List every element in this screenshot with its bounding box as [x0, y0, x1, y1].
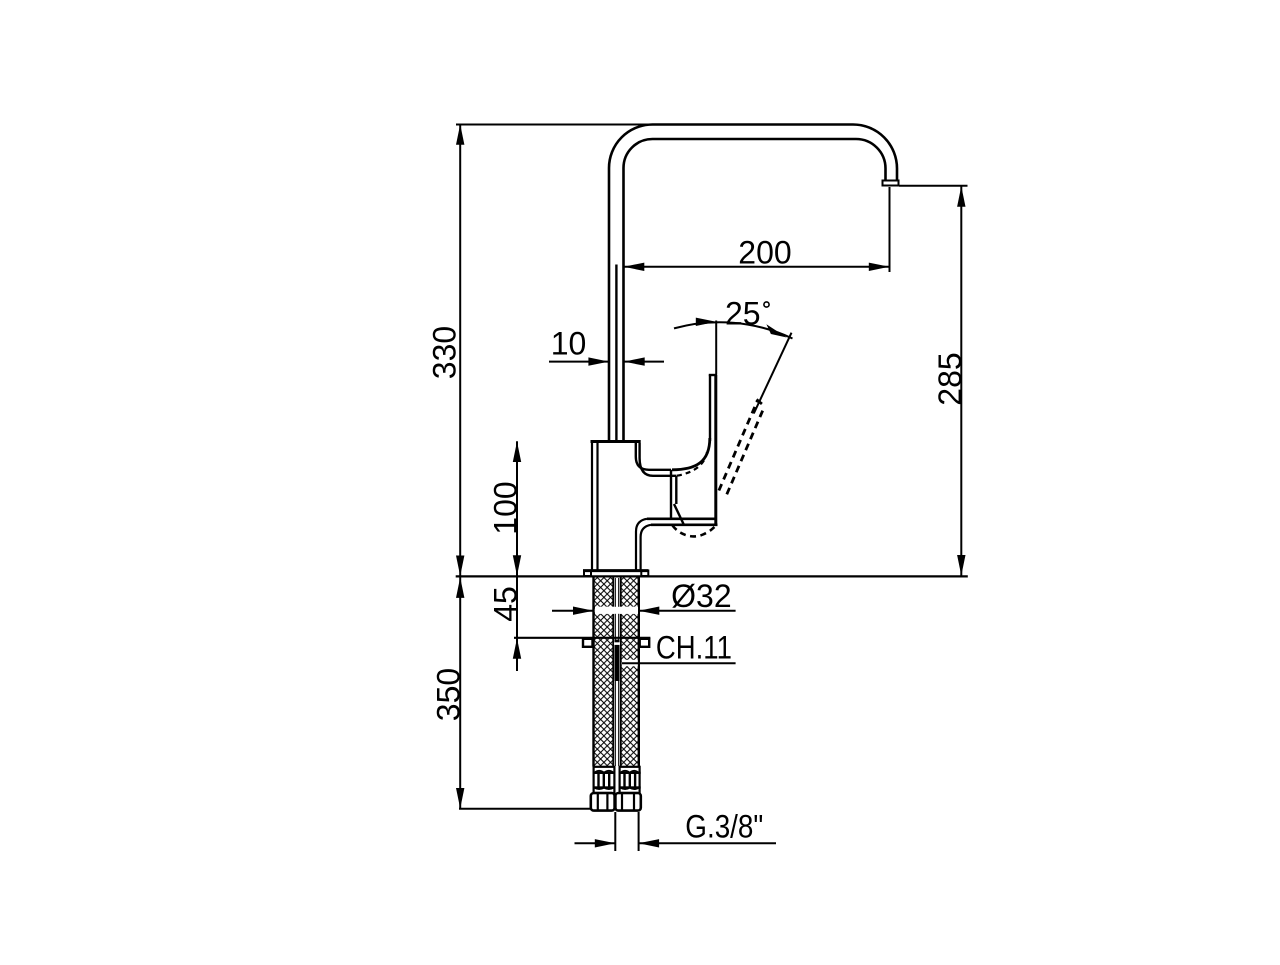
svg-text:CH.11: CH.11: [656, 630, 732, 666]
svg-text:200: 200: [738, 235, 791, 271]
svg-text:25: 25: [725, 296, 761, 332]
svg-text:100: 100: [488, 481, 524, 534]
svg-text:G.3/8": G.3/8": [685, 809, 763, 845]
svg-text:285: 285: [932, 352, 968, 405]
svg-text:Ø32: Ø32: [671, 578, 731, 614]
svg-text:10: 10: [551, 326, 587, 362]
svg-text:45: 45: [488, 586, 524, 622]
svg-text:350: 350: [431, 668, 467, 721]
svg-text:330: 330: [427, 326, 463, 379]
